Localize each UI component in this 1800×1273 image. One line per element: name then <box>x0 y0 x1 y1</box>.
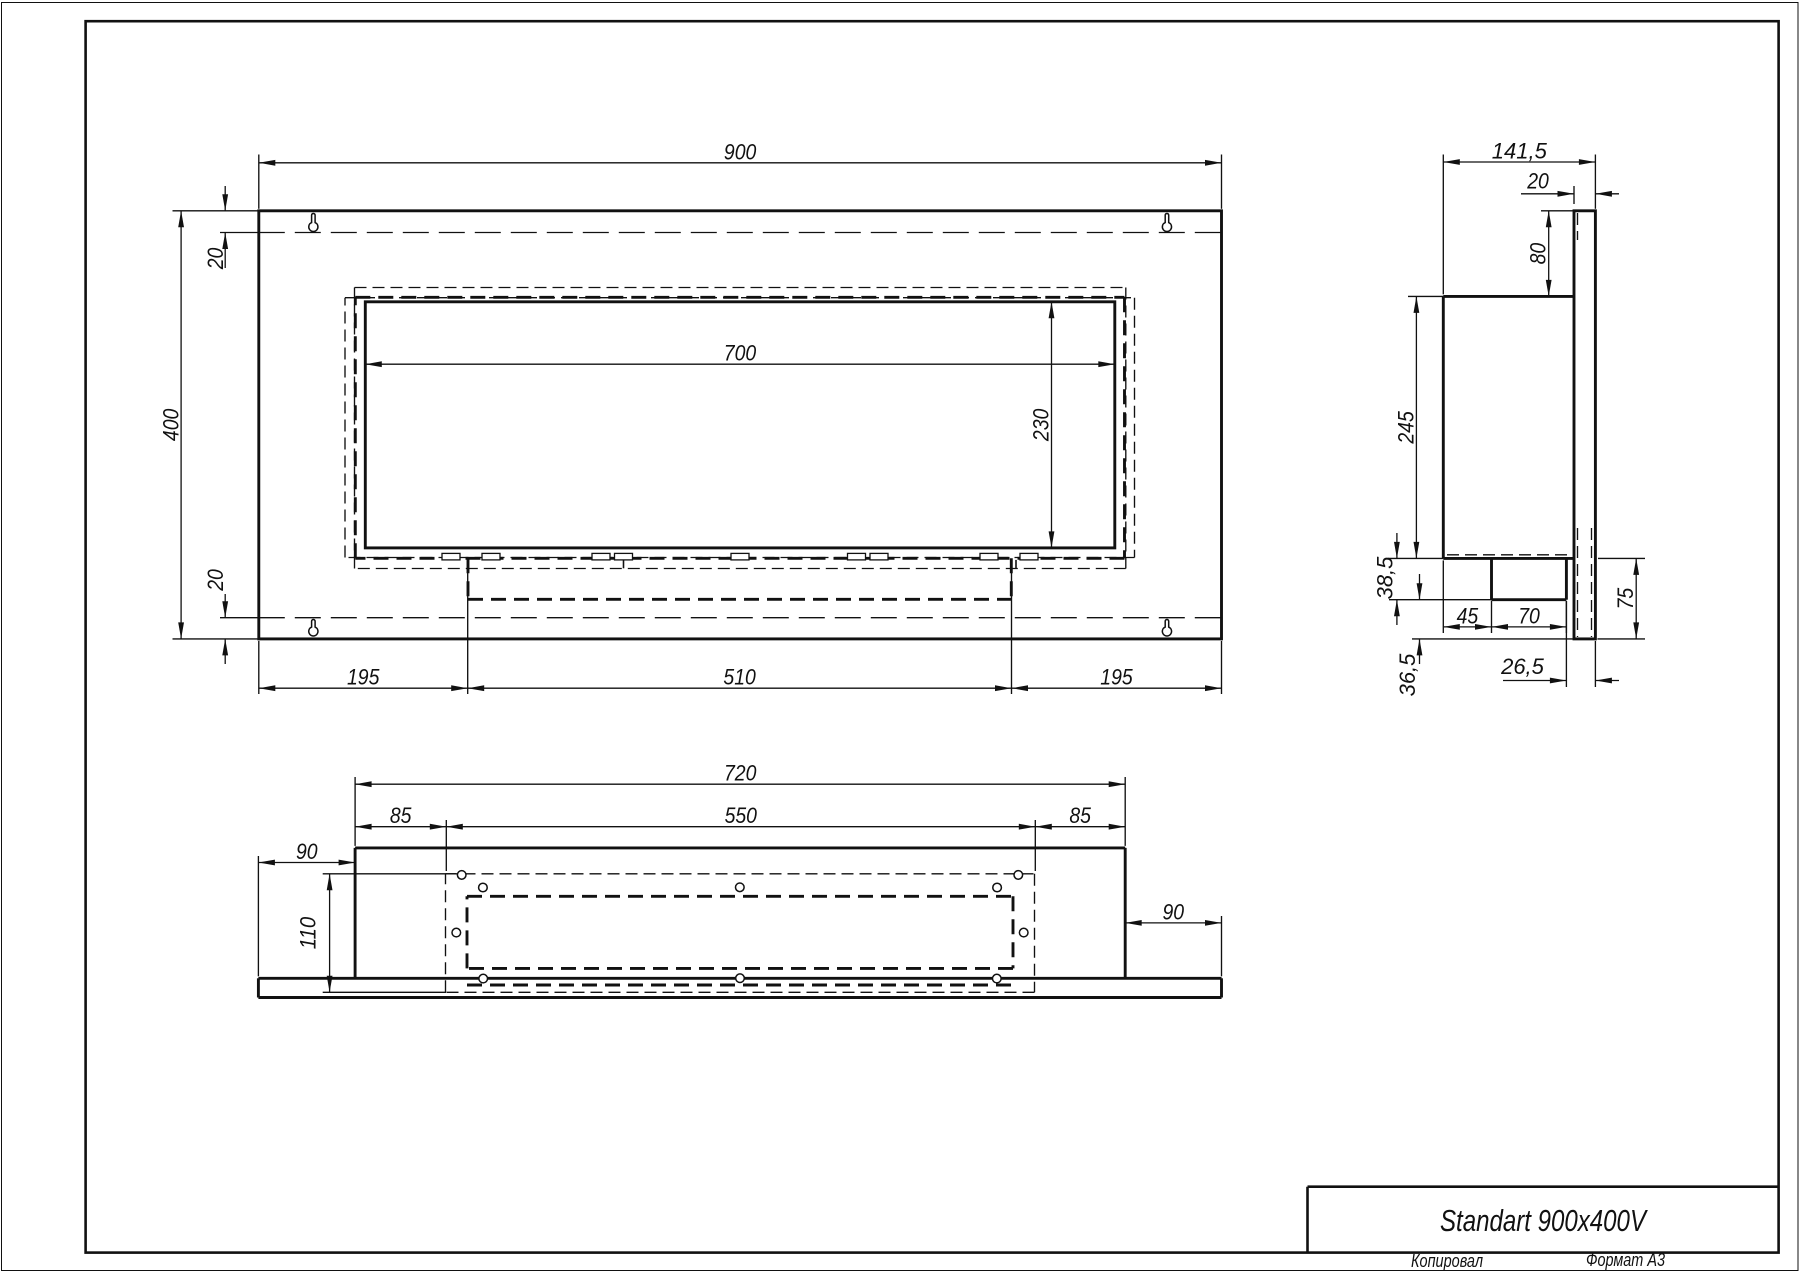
svg-text:550: 550 <box>725 803 758 828</box>
svg-text:45: 45 <box>1457 603 1479 628</box>
svg-text:230: 230 <box>1029 408 1054 442</box>
svg-text:26,5: 26,5 <box>1500 654 1545 679</box>
svg-text:110: 110 <box>296 916 321 949</box>
svg-text:36,5: 36,5 <box>1395 653 1420 697</box>
svg-text:75: 75 <box>1613 587 1638 609</box>
svg-text:20: 20 <box>203 247 228 270</box>
svg-text:141,5: 141,5 <box>1492 139 1548 164</box>
svg-text:195: 195 <box>1100 665 1133 690</box>
svg-text:245: 245 <box>1393 411 1418 445</box>
svg-text:400: 400 <box>159 408 184 441</box>
svg-text:85: 85 <box>1069 803 1091 828</box>
svg-text:720: 720 <box>724 761 757 786</box>
svg-text:Формат А3: Формат А3 <box>1586 1250 1665 1270</box>
svg-text:900: 900 <box>724 139 757 164</box>
svg-text:20: 20 <box>1526 169 1549 194</box>
svg-text:38,5: 38,5 <box>1372 556 1397 600</box>
svg-text:85: 85 <box>390 803 412 828</box>
svg-text:80: 80 <box>1526 242 1551 264</box>
svg-text:Копировал: Копировал <box>1411 1251 1483 1271</box>
svg-text:510: 510 <box>723 665 756 690</box>
svg-text:700: 700 <box>724 341 757 366</box>
svg-text:90: 90 <box>1163 899 1185 924</box>
svg-text:20: 20 <box>203 569 228 592</box>
svg-text:Standart 900x400V: Standart 900x400V <box>1440 1203 1649 1238</box>
svg-text:90: 90 <box>296 839 318 864</box>
svg-text:70: 70 <box>1518 603 1540 628</box>
svg-text:195: 195 <box>347 665 380 690</box>
